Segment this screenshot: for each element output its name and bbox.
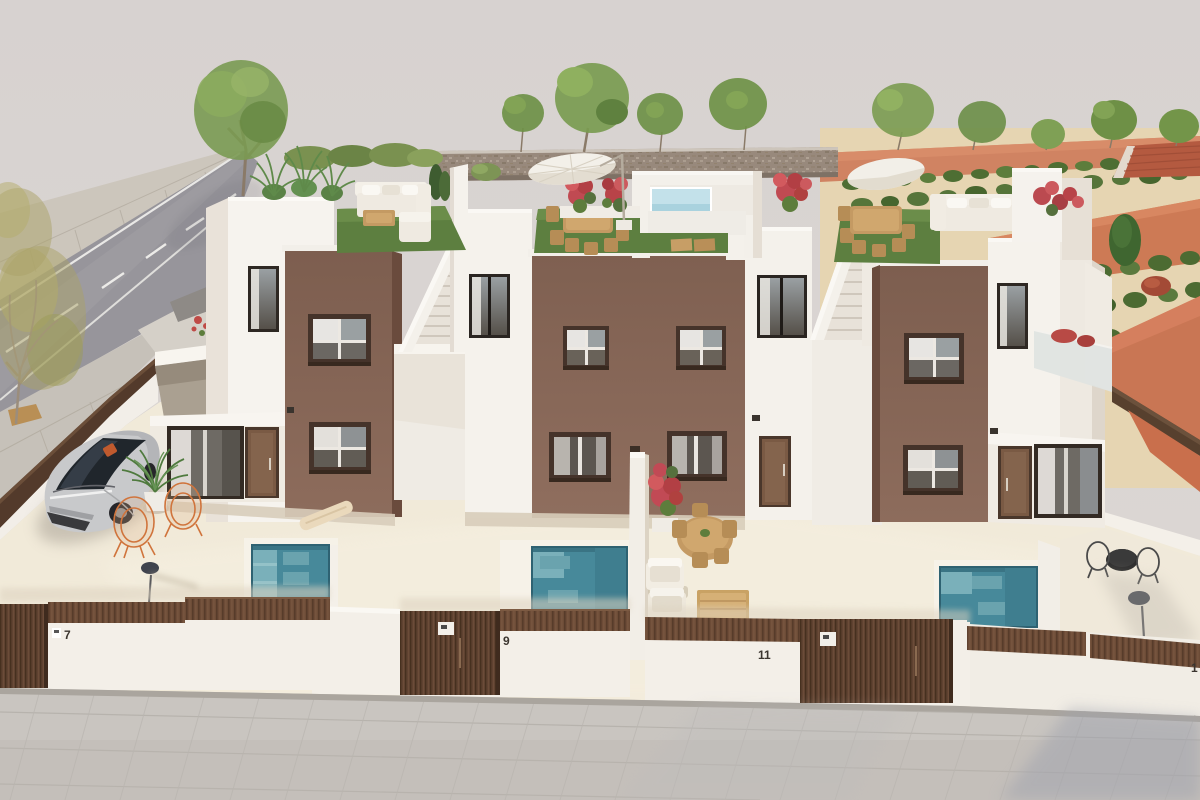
svg-text:9: 9 (503, 634, 510, 648)
svg-text:11: 11 (758, 648, 771, 662)
svg-text:7: 7 (64, 628, 71, 642)
svg-text:1: 1 (1191, 661, 1198, 675)
